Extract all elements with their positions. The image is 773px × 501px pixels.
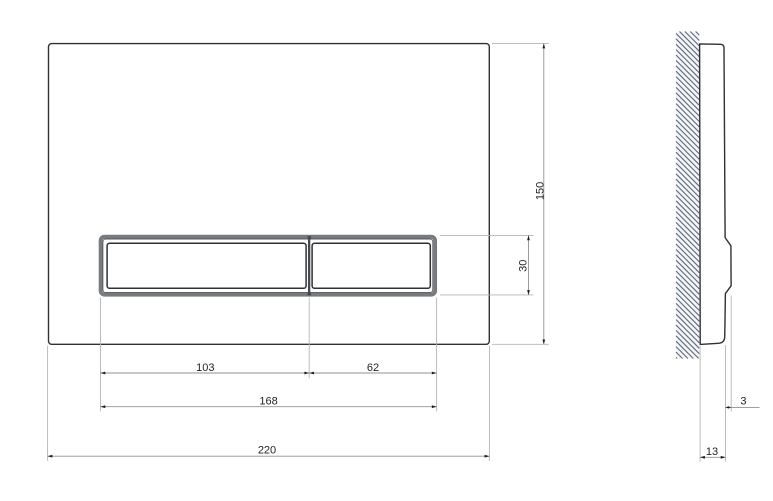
svg-text:220: 220 xyxy=(258,445,276,457)
svg-text:62: 62 xyxy=(367,362,379,374)
svg-text:103: 103 xyxy=(196,362,214,374)
svg-text:30: 30 xyxy=(518,260,530,272)
svg-text:13: 13 xyxy=(706,446,718,458)
svg-text:3: 3 xyxy=(740,396,746,408)
svg-text:168: 168 xyxy=(259,395,277,407)
svg-text:150: 150 xyxy=(534,182,546,200)
